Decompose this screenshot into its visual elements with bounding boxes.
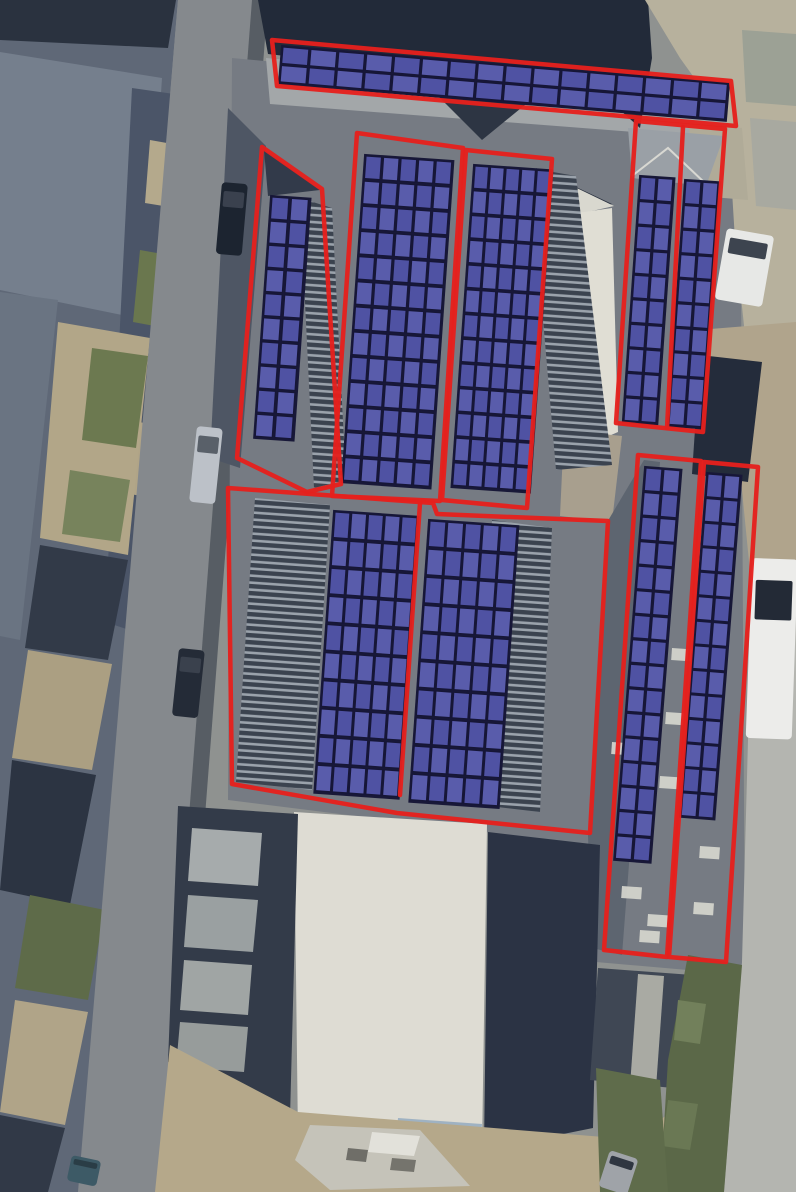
solar-panel (376, 628, 393, 655)
solar-panel (627, 689, 645, 713)
car-dark-top-windshield (222, 191, 244, 209)
solar-panel (448, 749, 466, 776)
solar-panel (349, 768, 366, 795)
solar-panel (651, 617, 669, 641)
solar-panel (375, 258, 392, 282)
solar-panel (644, 468, 662, 492)
solar-panel (417, 160, 434, 184)
solar-panel (456, 413, 471, 436)
solar-panel (368, 741, 385, 768)
skylight-patch (621, 886, 642, 899)
solar-panel (345, 433, 362, 457)
solar-panel (352, 332, 369, 356)
solar-panel (463, 314, 478, 337)
solar-panel (660, 494, 678, 518)
solar-panel (357, 257, 374, 281)
solar-panel (631, 300, 648, 324)
solar-panel (644, 350, 661, 374)
solar-panel (518, 194, 533, 217)
solar-panel (364, 72, 391, 91)
solar-panel (380, 182, 397, 206)
solar-panel (491, 366, 506, 389)
solar-panel (378, 208, 395, 232)
solar-panel (270, 197, 288, 220)
solar-panel (329, 568, 346, 595)
solar-panel (434, 691, 452, 718)
solar-panel (505, 392, 520, 415)
solar-panel (693, 646, 710, 670)
solar-panel (321, 681, 338, 708)
solar-panel (336, 710, 353, 737)
solar-panel (310, 49, 337, 68)
solar-panel (623, 738, 641, 762)
solar-panel (338, 682, 355, 709)
solar-panel (487, 192, 502, 215)
solar-panel (674, 328, 691, 352)
solar-panel (350, 357, 367, 381)
solar-panel (633, 837, 651, 861)
solar-panel (432, 719, 450, 746)
solar-panel (460, 364, 475, 387)
solar-panel (689, 695, 706, 719)
solar-panel (429, 236, 446, 260)
solar-panel (285, 271, 303, 294)
solar-panel (643, 96, 670, 115)
solar-panel (400, 158, 417, 182)
solar-panel (374, 656, 391, 683)
white-building (294, 812, 487, 1148)
solar-panel (470, 215, 485, 238)
skylight-patch (639, 930, 660, 943)
solar-panel (371, 308, 388, 332)
solar-panel (424, 577, 442, 604)
solar-panel (276, 391, 294, 414)
solar-panel (323, 653, 340, 680)
solar-panel (559, 89, 586, 108)
solar-panel (373, 283, 390, 307)
solar-panel (461, 339, 476, 362)
solar-panel (333, 512, 350, 539)
solar-panel (472, 414, 487, 437)
solar-panel (283, 295, 301, 318)
solar-panel (634, 251, 651, 275)
solar-panel (380, 435, 397, 459)
solar-panel (616, 75, 643, 94)
solar-panel (698, 231, 715, 255)
yard-step-1 (188, 828, 262, 886)
solar-panel (440, 607, 458, 634)
solar-panel (361, 206, 378, 230)
solar-panel (359, 627, 376, 654)
solar-panel (410, 260, 427, 284)
solar-panel (370, 712, 387, 739)
solar-panel (452, 692, 470, 719)
solar-panel (671, 377, 688, 401)
solar-panel (420, 634, 438, 661)
solar-panel (717, 549, 734, 573)
car-silver-left-windshield (197, 435, 219, 454)
solar-panel (366, 383, 383, 407)
solar-panel (520, 169, 535, 192)
solar-panel (378, 460, 395, 484)
solar-panel (281, 319, 299, 342)
solar-panel (654, 568, 672, 592)
solar-panel (380, 572, 397, 599)
solar-panel (325, 625, 342, 652)
solar-panel (489, 167, 504, 190)
slab-2 (750, 118, 796, 210)
solar-panel (639, 177, 656, 201)
solar-panel (511, 293, 526, 316)
solar-panel (685, 744, 702, 768)
solar-panel (506, 367, 521, 390)
solar-panel (382, 157, 399, 181)
solar-panel (280, 343, 298, 366)
solar-panel (669, 402, 686, 426)
solar-panel (688, 379, 705, 403)
solar-panel (621, 762, 639, 786)
solar-panel (412, 746, 430, 773)
solar-panel (363, 571, 380, 598)
solar-panel (693, 305, 710, 329)
solar-panel (484, 751, 502, 778)
solar-panel (378, 600, 395, 627)
van-white-right-windshield (754, 580, 792, 621)
solar-panel (400, 411, 417, 435)
solar-panel (706, 474, 723, 498)
solar-panel (418, 662, 436, 689)
solar-panel (415, 437, 432, 461)
solar-panel (486, 217, 501, 240)
solar-panel (477, 340, 492, 363)
solar-panel (267, 245, 285, 268)
solar-panel (348, 541, 365, 568)
garden-3 (62, 470, 130, 542)
solar-panel (435, 161, 452, 185)
solar-panel (678, 279, 695, 303)
solar-panel (515, 243, 530, 266)
solar-panel (503, 193, 518, 216)
solar-panel (700, 82, 727, 101)
solar-panel (638, 542, 656, 566)
solar-panel (354, 307, 371, 331)
solar-panel (695, 621, 712, 645)
solar-panel (625, 713, 643, 737)
solar-panel (640, 517, 658, 541)
solar-panel (477, 63, 504, 82)
solar-panel (697, 597, 714, 621)
solar-panel (533, 68, 560, 87)
solar-panel (364, 156, 381, 180)
solar-panel (391, 284, 408, 308)
solar-panel (260, 342, 278, 365)
solar-panel (638, 202, 655, 226)
solar-panel (422, 605, 440, 632)
solar-panel (619, 787, 637, 811)
solar-panel (385, 360, 402, 384)
solar-panel (649, 641, 667, 665)
solar-panel (405, 336, 422, 360)
solar-panel (460, 580, 478, 607)
solar-panel (615, 94, 642, 113)
solar-panel (416, 690, 434, 717)
solar-panel (389, 309, 406, 333)
solar-panel (531, 87, 558, 106)
solar-panel (691, 670, 708, 694)
solar-panel (365, 54, 392, 73)
solar-panel (475, 82, 502, 101)
solar-panel (468, 722, 486, 749)
solar-panel (387, 334, 404, 358)
solar-panel (710, 647, 727, 671)
solar-panel (396, 209, 413, 233)
solar-panel (479, 316, 494, 339)
solar-panel (430, 747, 448, 774)
solar-panel (478, 581, 496, 608)
solar-panel (499, 526, 517, 553)
solar-panel (715, 573, 732, 597)
solar-panel (426, 549, 444, 576)
solar-panel (361, 599, 378, 626)
solar-panel (282, 47, 309, 66)
solar-panel (468, 464, 483, 487)
solar-panel (517, 219, 532, 242)
solar-panel (472, 665, 490, 692)
solar-panel (383, 516, 400, 543)
solar-panel (458, 608, 476, 635)
solar-panel (676, 304, 693, 328)
solar-panel (393, 56, 420, 75)
solar-panel (470, 694, 488, 721)
solar-panel (384, 385, 401, 409)
yard-step-3 (180, 960, 252, 1015)
solar-panel (351, 739, 368, 766)
solar-panel (467, 265, 482, 288)
solar-panel (411, 774, 429, 801)
solar-panel (499, 466, 514, 489)
solar-panel (287, 247, 305, 270)
solar-panel (561, 70, 588, 89)
solar-panel (316, 765, 333, 792)
solar-panel (487, 416, 502, 439)
solar-panel (637, 788, 655, 812)
solar-panel (699, 101, 726, 120)
solar-panel (635, 591, 653, 615)
solar-panel (723, 475, 740, 499)
solar-panel (346, 569, 363, 596)
solar-panel (334, 738, 351, 765)
solar-panel (636, 226, 653, 250)
solar-panel (681, 793, 698, 817)
solar-panel (658, 518, 676, 542)
solar-panel (696, 256, 713, 280)
solar-panel (702, 745, 719, 769)
solar-panel (264, 294, 282, 317)
solar-panel (382, 544, 399, 571)
solar-panel (372, 684, 389, 711)
solar-panel (508, 342, 523, 365)
solar-panel (472, 191, 487, 214)
solar-panel (712, 622, 729, 646)
solar-panel (679, 255, 696, 279)
solar-panel (392, 629, 409, 656)
solar-panel (394, 234, 411, 258)
solar-panel (643, 715, 661, 739)
solar-panel (647, 666, 665, 690)
solar-panel (489, 391, 504, 414)
solar-panel (686, 403, 703, 427)
solar-panel (388, 685, 405, 712)
solar-panel (643, 375, 660, 399)
solar-panel (377, 233, 394, 257)
skylight-patch (699, 846, 720, 859)
solar-panel (462, 552, 480, 579)
solar-panel (629, 324, 646, 348)
solar-panel (456, 636, 474, 663)
solar-panel (347, 407, 364, 431)
solar-panel (644, 77, 671, 96)
solar-panel (407, 311, 424, 335)
solar-panel (450, 720, 468, 747)
solar-panel (449, 61, 476, 80)
solar-panel (589, 73, 616, 92)
solar-panel (473, 166, 488, 189)
solar-panel (420, 77, 447, 96)
solar-panel (489, 667, 507, 694)
solar-panel (317, 737, 334, 764)
solar-panel (400, 517, 417, 544)
solar-panel (704, 499, 721, 523)
solar-panel (645, 690, 663, 714)
solar-panel (484, 465, 499, 488)
solar-panel (359, 231, 376, 255)
solar-panel (484, 241, 499, 264)
solar-panel (426, 287, 443, 311)
solar-panel (629, 664, 647, 688)
solar-panel (470, 439, 485, 462)
solar-panel (438, 635, 456, 662)
solar-panel (365, 542, 382, 569)
solar-panel (494, 317, 509, 340)
solar-panel (343, 458, 360, 482)
solar-panel (422, 337, 439, 361)
solar-panel (473, 390, 488, 413)
solar-panel (480, 553, 498, 580)
solar-panel (396, 573, 413, 600)
solar-panel (480, 291, 495, 314)
houses-dark-top (0, 0, 176, 48)
solar-panel (396, 461, 413, 485)
solar-panel (394, 601, 411, 628)
solar-panel (701, 182, 718, 206)
solar-panel (708, 672, 725, 696)
solar-panel (486, 440, 501, 463)
solar-panel (392, 75, 419, 94)
solar-panel (255, 414, 273, 437)
solar-panel (641, 399, 658, 423)
solar-panel (503, 417, 518, 440)
solar-panel (683, 768, 700, 792)
solar-panel (431, 211, 448, 235)
solar-panel (417, 412, 434, 436)
vehicle-van-white-right (746, 558, 796, 739)
solar-panel (505, 66, 532, 85)
solar-panel (269, 221, 287, 244)
solar-panel (370, 333, 387, 357)
solar-panel (356, 282, 373, 306)
solar-panel (393, 259, 410, 283)
solar-panel (646, 325, 663, 349)
solar-panel (651, 252, 668, 276)
solar-panel (353, 711, 370, 738)
solar-panel (436, 663, 454, 690)
solar-panel (681, 230, 698, 254)
solar-panel (357, 655, 374, 682)
solar-panel (631, 640, 649, 664)
rubble-light (368, 1132, 420, 1156)
solar-panel (648, 301, 665, 325)
solar-panel (382, 410, 399, 434)
solar-panel (344, 598, 361, 625)
yard-step-2 (184, 895, 258, 952)
solar-panel (653, 592, 671, 616)
solar-panel (340, 654, 357, 681)
rubble-dark-2 (390, 1158, 416, 1172)
solar-panel (275, 416, 293, 439)
solar-panel (257, 390, 275, 413)
solar-panel (401, 386, 418, 410)
solar-panel (366, 769, 383, 796)
solar-panel (633, 615, 651, 639)
solar-panel (497, 554, 515, 581)
solar-panel (350, 513, 367, 540)
solar-panel (444, 550, 462, 577)
solar-panel (398, 545, 415, 572)
solar-panel (361, 459, 378, 483)
solar-panel (331, 540, 348, 567)
solar-panel (262, 318, 280, 341)
solar-panel (355, 683, 372, 710)
solar-panel (672, 353, 689, 377)
solar-panel (367, 514, 384, 541)
solar-panel (702, 523, 719, 547)
solar-panel (642, 493, 660, 517)
solar-panel (414, 210, 431, 234)
solar-panel (505, 168, 520, 191)
solar-panel (615, 836, 633, 860)
solar-panel (419, 387, 436, 411)
solar-panel (624, 398, 641, 422)
solar-panel (700, 770, 717, 794)
solar-panel (691, 329, 708, 353)
solar-panel (510, 318, 525, 341)
solar-panel (641, 739, 659, 763)
solar-panel (481, 525, 499, 552)
solar-panel (501, 441, 516, 464)
solar-panel (368, 358, 385, 382)
solar-panel (695, 280, 712, 304)
solar-panel (414, 718, 432, 745)
solar-panel (495, 582, 513, 609)
solar-panel (689, 354, 706, 378)
solar-panel (421, 362, 438, 386)
solar-panel (415, 185, 432, 209)
solar-panel (308, 68, 335, 87)
solar-panel (656, 543, 674, 567)
solar-panel (412, 235, 429, 259)
slab-1 (742, 30, 796, 106)
aerial-solar-layout-image[interactable] (0, 0, 796, 1192)
